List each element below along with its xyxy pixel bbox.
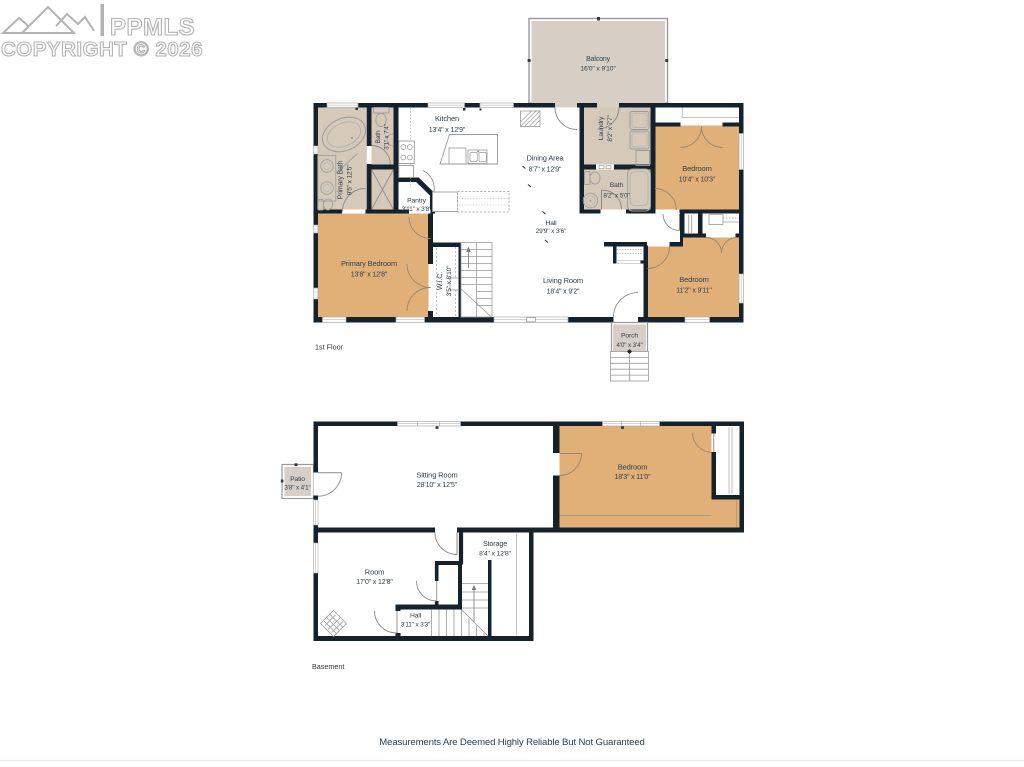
svg-text:3'11" x 3'3": 3'11" x 3'3" [401, 622, 430, 629]
svg-text:Bath: Bath [375, 130, 382, 143]
svg-text:Living Room: Living Room [543, 276, 583, 285]
svg-text:18'3" x 11'0": 18'3" x 11'0" [615, 474, 652, 481]
svg-text:W.I.C.: W.I.C. [437, 272, 444, 290]
svg-text:Bedroom: Bedroom [682, 164, 711, 173]
svg-text:Bath: Bath [610, 182, 624, 189]
svg-text:10'4" x 10'3": 10'4" x 10'3" [679, 177, 716, 184]
svg-text:Measurements Are Deemed Highly: Measurements Are Deemed Highly Reliable … [379, 737, 644, 748]
svg-text:Primary Bedroom: Primary Bedroom [341, 259, 397, 268]
svg-text:9'5" x 12'5": 9'5" x 12'5" [347, 164, 354, 196]
svg-text:Sitting Room: Sitting Room [416, 471, 457, 480]
svg-text:4'0" x 3'4": 4'0" x 3'4" [616, 342, 642, 349]
svg-text:Hall: Hall [410, 613, 422, 620]
svg-text:8'2" x 7'7": 8'2" x 7'7" [607, 115, 614, 141]
svg-text:Laundry: Laundry [598, 116, 605, 140]
svg-text:Hall: Hall [545, 220, 557, 227]
svg-text:28'10" x 12'5": 28'10" x 12'5" [417, 482, 458, 489]
svg-text:Room: Room [365, 568, 384, 577]
svg-text:8'2" x 5'0": 8'2" x 5'0" [603, 193, 629, 200]
svg-text:11'2" x 9'11": 11'2" x 9'11" [676, 288, 712, 295]
svg-text:Storage: Storage [483, 539, 507, 548]
svg-text:29'9" x 3'6": 29'9" x 3'6" [536, 228, 568, 235]
svg-text:Dining Area: Dining Area [526, 154, 564, 163]
svg-text:PPMLS: PPMLS [110, 14, 195, 41]
svg-text:13'4" x 12'9": 13'4" x 12'9" [429, 127, 466, 134]
svg-text:Primary Bath: Primary Bath [338, 160, 345, 199]
svg-text:3'8" x 4'1": 3'8" x 4'1" [284, 485, 310, 492]
svg-text:13'8" x 12'8": 13'8" x 12'8" [351, 272, 388, 279]
svg-text:8'4" x 12'8": 8'4" x 12'8" [479, 551, 511, 558]
svg-text:3'1" x 7'4": 3'1" x 7'4" [384, 124, 391, 149]
svg-text:Porch: Porch [621, 333, 638, 340]
svg-text:Patio: Patio [290, 476, 305, 483]
svg-text:Bedroom: Bedroom [679, 275, 708, 284]
svg-text:Balcony: Balcony [586, 56, 611, 63]
svg-text:3'5" x 8'10": 3'5" x 8'10" [446, 265, 453, 297]
svg-text:8'7" x 12'9": 8'7" x 12'9" [529, 167, 562, 174]
svg-text:Bedroom: Bedroom [618, 463, 647, 472]
svg-text:18'4" x 9'2": 18'4" x 9'2" [547, 289, 580, 296]
svg-text:16'0" x 9'10": 16'0" x 9'10" [580, 66, 616, 73]
svg-text:Kitchen: Kitchen [435, 114, 459, 123]
svg-text:1st Floor: 1st Floor [315, 343, 344, 352]
svg-text:Basement: Basement [312, 662, 344, 671]
svg-text:COPYRIGHT © 2026: COPYRIGHT © 2026 [1, 38, 203, 61]
svg-text:Pantry: Pantry [407, 198, 426, 205]
svg-text:17'0" x 12'8": 17'0" x 12'8" [356, 579, 393, 586]
svg-text:3'11" x 3'8": 3'11" x 3'8" [402, 206, 433, 213]
